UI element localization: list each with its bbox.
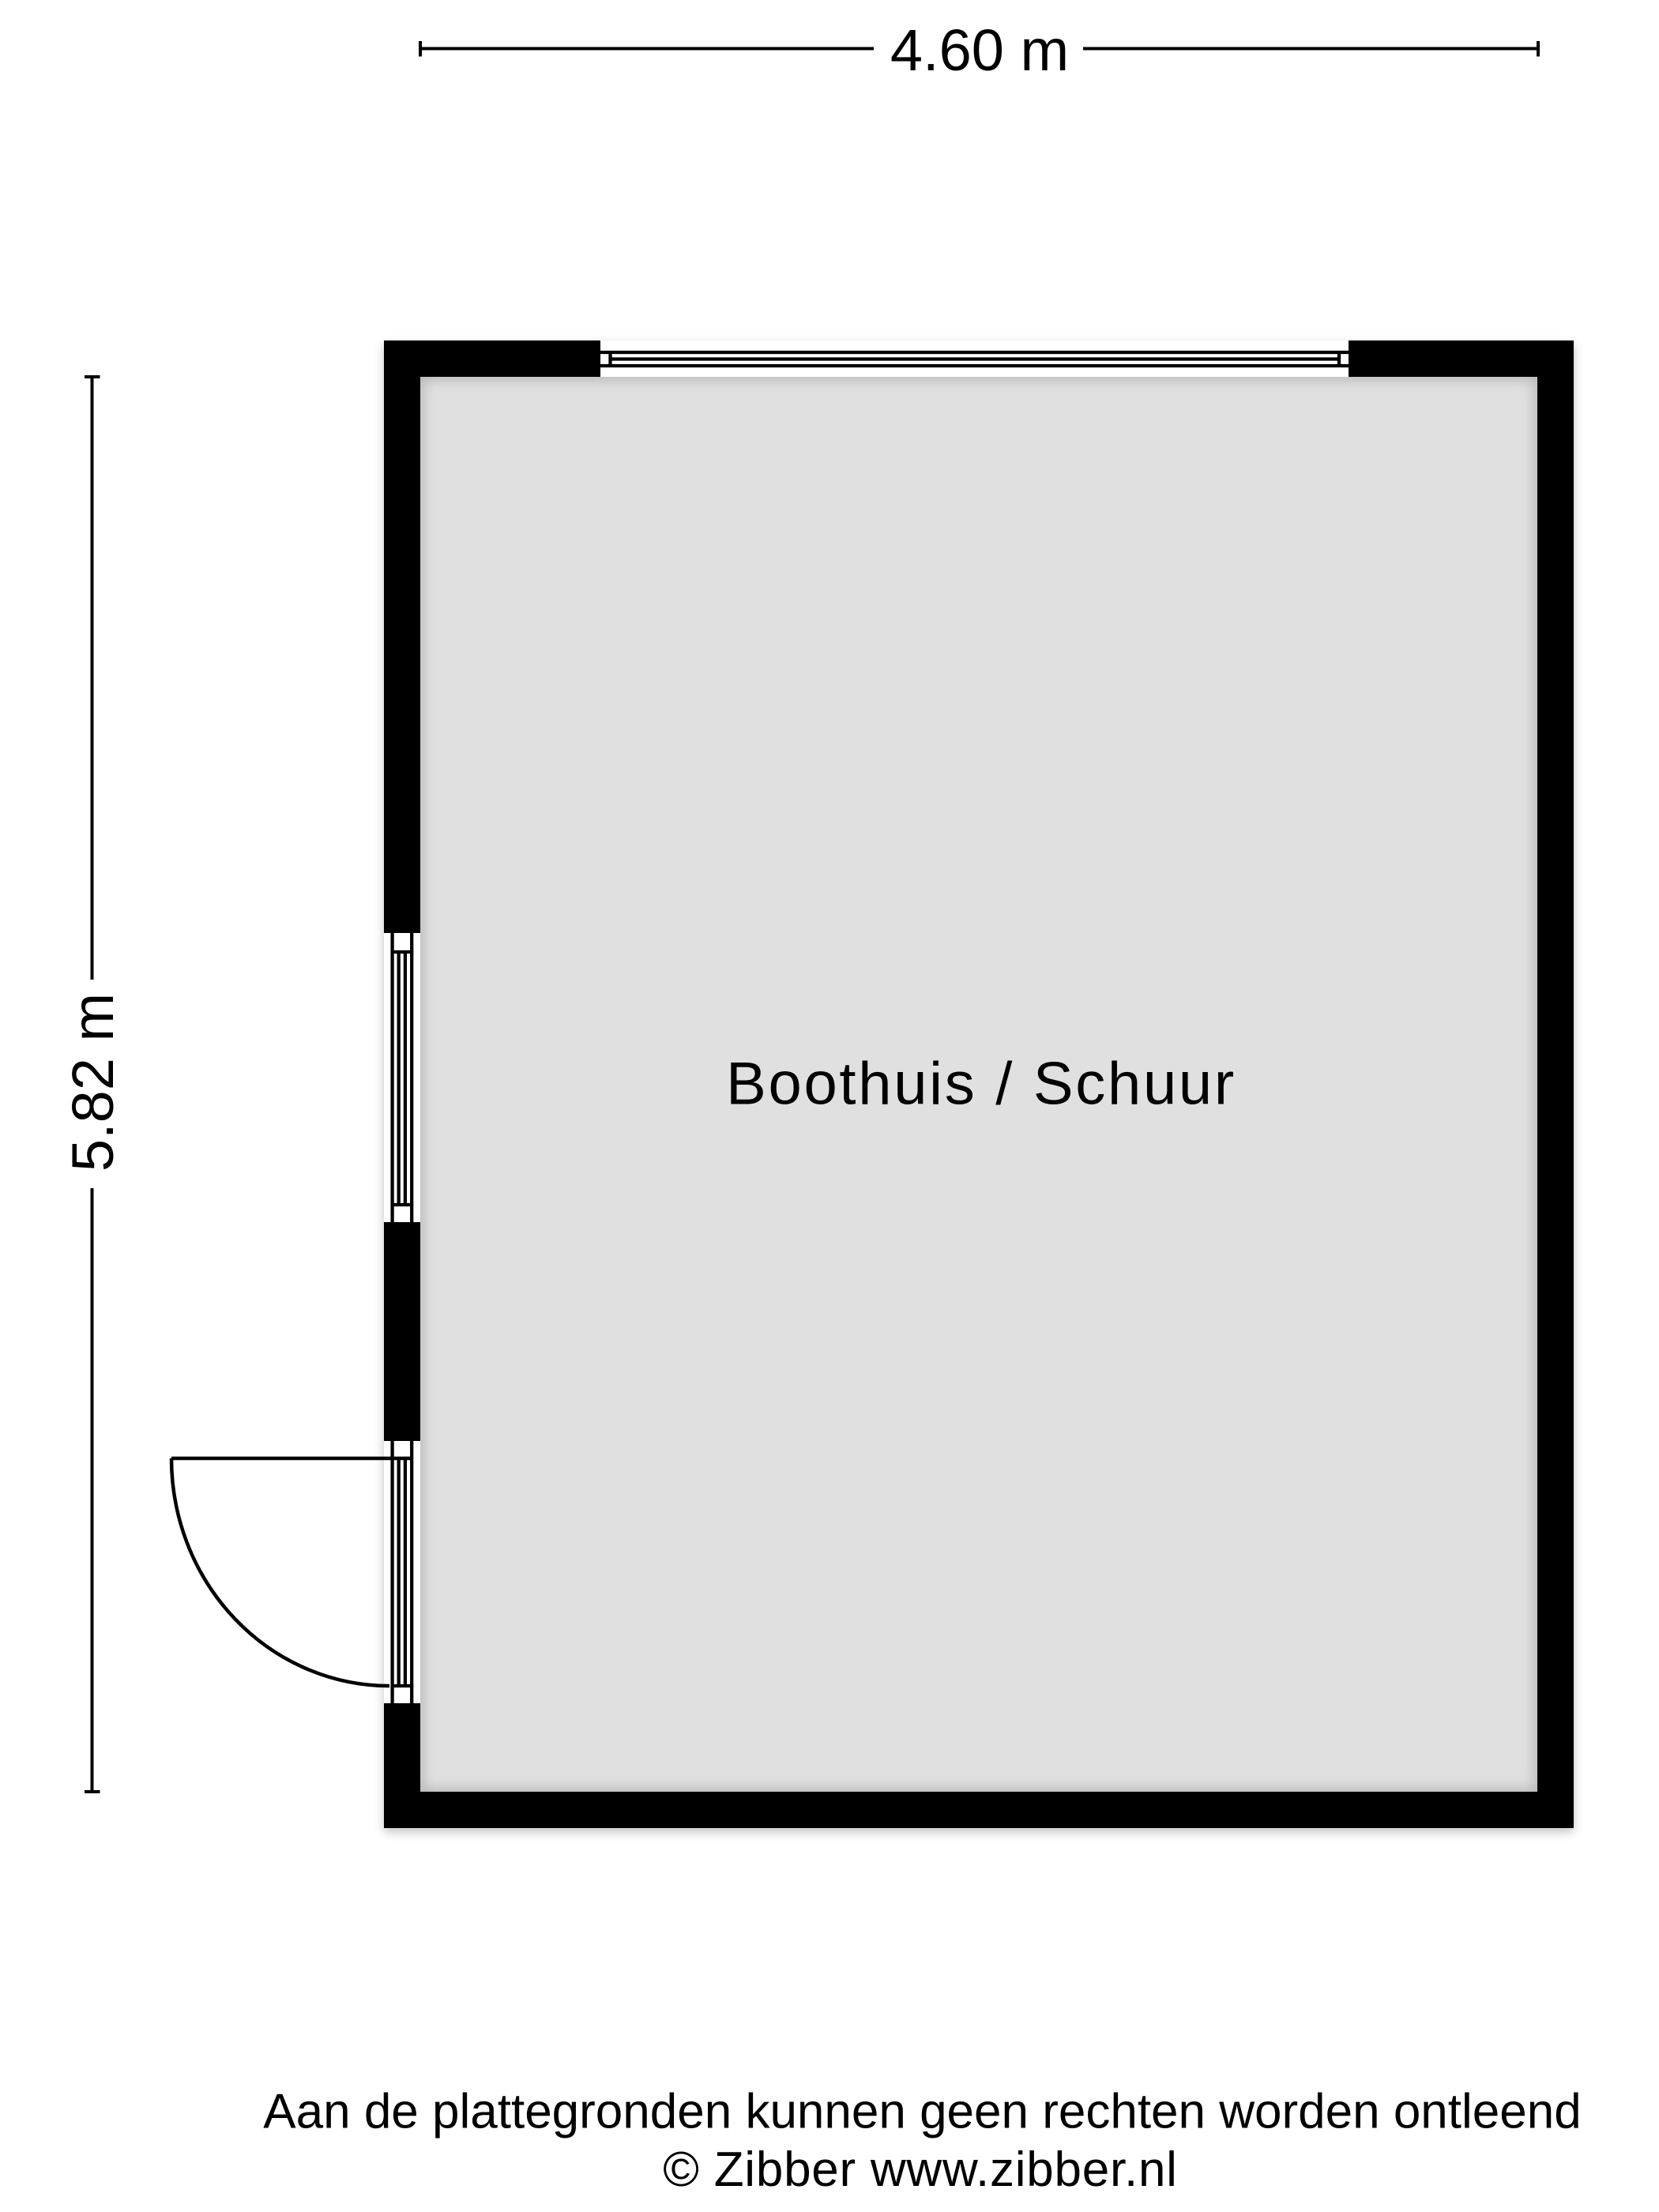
svg-text:4.60 m: 4.60 m	[890, 17, 1069, 83]
svg-text:Boothuis / Schuur: Boothuis / Schuur	[726, 1051, 1236, 1118]
svg-text:Aan de plattegronden kunnen ge: Aan de plattegronden kunnen geen rechten…	[263, 2085, 1581, 2139]
svg-text:5.82 m: 5.82 m	[60, 993, 126, 1172]
svg-text:© Zibber www.zibber.nl: © Zibber www.zibber.nl	[663, 2142, 1177, 2197]
